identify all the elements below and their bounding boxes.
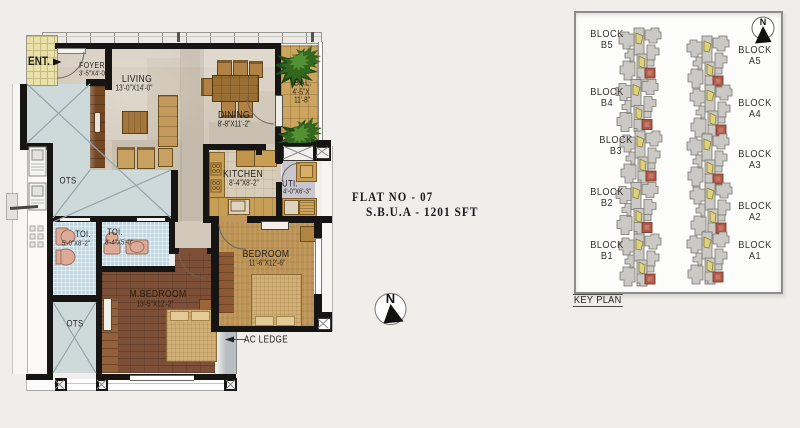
svg-text:N: N	[760, 17, 767, 27]
svg-text:N: N	[386, 291, 395, 306]
